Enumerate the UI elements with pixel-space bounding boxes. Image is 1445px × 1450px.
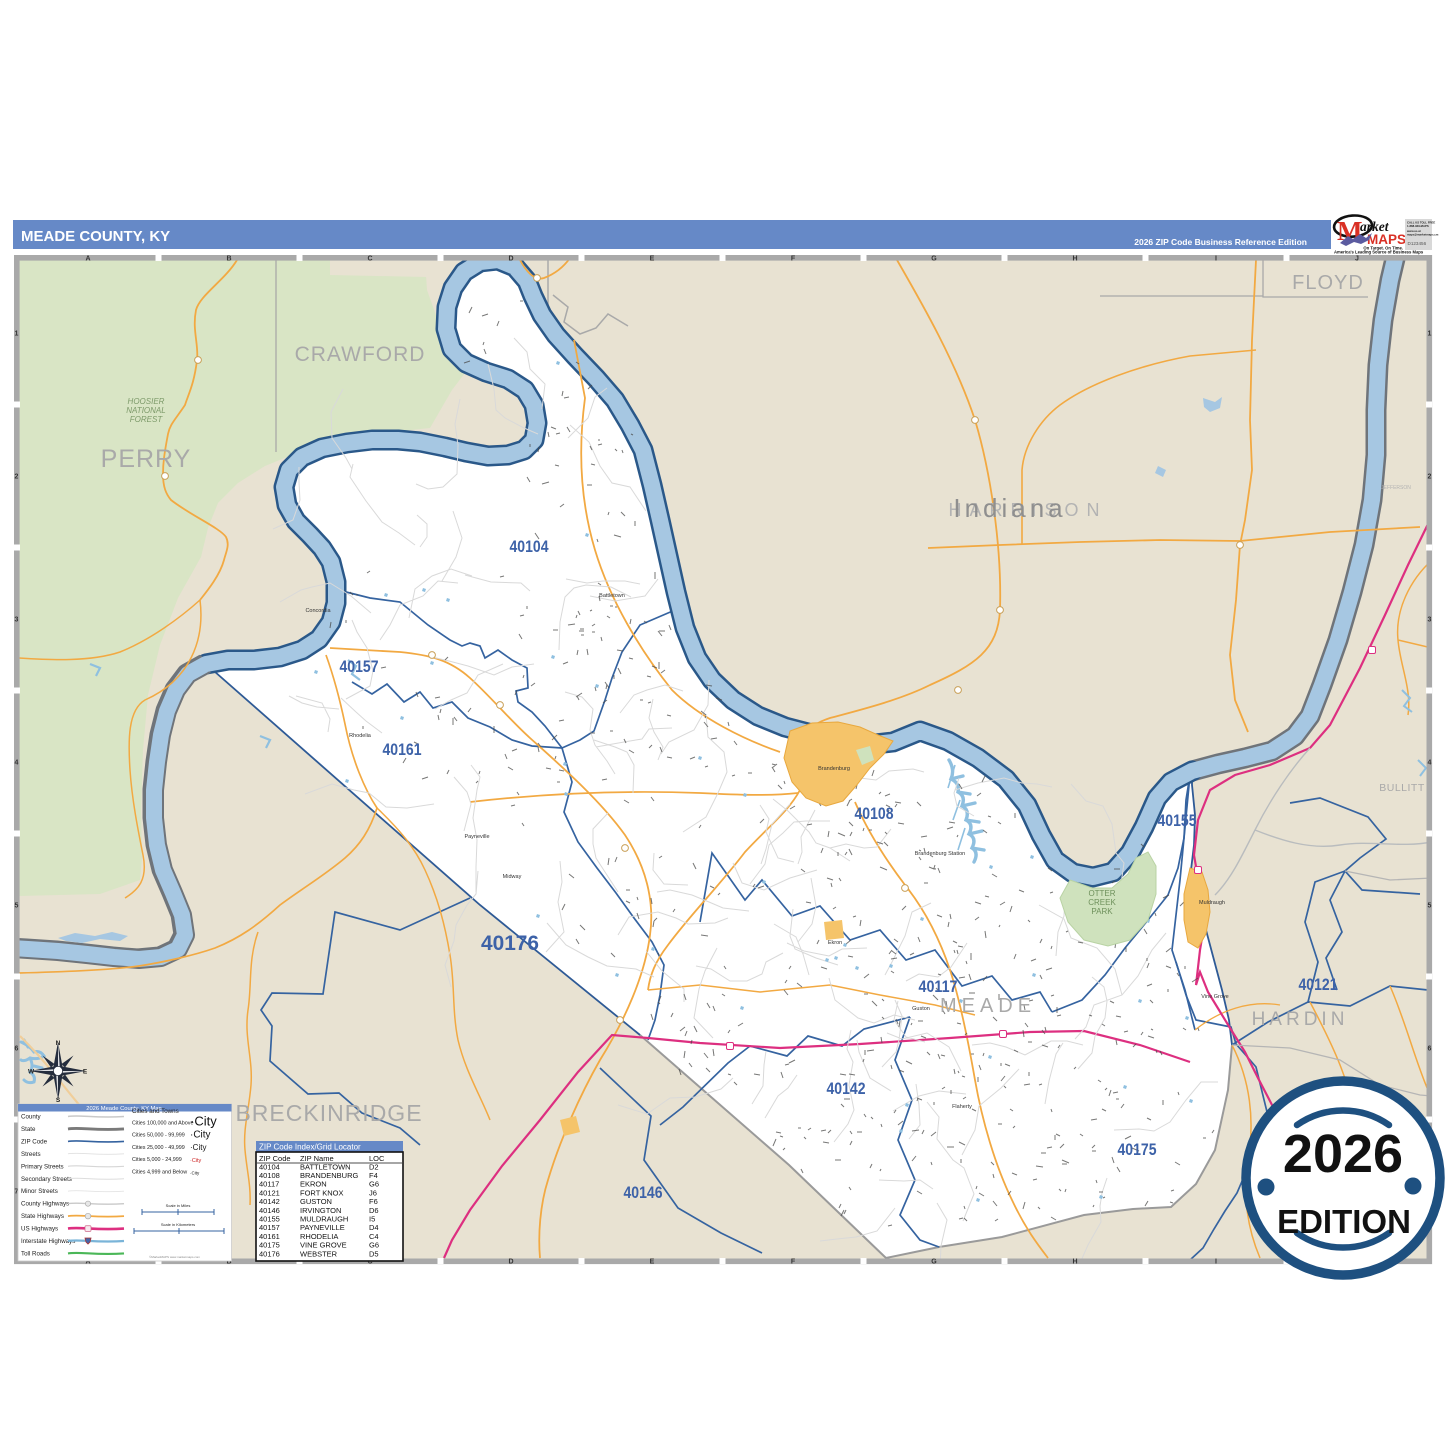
svg-text:Cities 50,000 - 99,999: Cities 50,000 - 99,999	[132, 1133, 185, 1139]
svg-text:4: 4	[1428, 760, 1432, 767]
svg-text:40104: 40104	[510, 538, 550, 556]
svg-text:BULLITT: BULLITT	[1379, 782, 1425, 794]
svg-text:Muldraugh: Muldraugh	[1199, 900, 1225, 906]
svg-text:2: 2	[1428, 474, 1432, 481]
svg-text:Cities and Towns: Cities and Towns	[132, 1108, 179, 1115]
svg-text:Interstate Highways: Interstate Highways	[21, 1238, 75, 1245]
svg-text:FORT KNOX: FORT KNOX	[300, 1188, 343, 1197]
svg-text:BATTLETOWN: BATTLETOWN	[300, 1162, 351, 1171]
svg-text:·City: ·City	[190, 1114, 217, 1129]
svg-text:4: 4	[15, 760, 19, 767]
svg-text:C4: C4	[369, 1232, 379, 1241]
svg-text:D2: D2	[369, 1162, 379, 1171]
svg-text:2026 ZIP Code Business Referen: 2026 ZIP Code Business Reference Edition	[1134, 237, 1307, 247]
svg-text:Rhodelia: Rhodelia	[349, 733, 372, 739]
svg-text:America's Leading Source of B: America's Leading Source of Business Map…	[1334, 250, 1424, 255]
svg-text:1: 1	[1428, 331, 1432, 338]
svg-text:NATIONAL: NATIONAL	[126, 406, 165, 415]
svg-text:D5: D5	[369, 1249, 379, 1258]
svg-text:Streets: Streets	[21, 1151, 41, 1158]
svg-text:Cities 100,000 and Above: Cities 100,000 and Above	[132, 1121, 193, 1127]
svg-text:County Highways: County Highways	[21, 1201, 69, 1208]
svg-text:Scale in Kilometers: Scale in Kilometers	[161, 1222, 195, 1227]
svg-text:Payneville: Payneville	[464, 834, 489, 840]
svg-text:maps@marketmaps.cm: maps@marketmaps.cm	[1407, 233, 1439, 237]
svg-text:F: F	[791, 1259, 796, 1266]
svg-text:3: 3	[15, 617, 19, 624]
svg-text:5: 5	[1428, 903, 1432, 910]
svg-text:GUSTON: GUSTON	[300, 1197, 332, 1206]
svg-text:2: 2	[15, 474, 19, 481]
svg-text:County: County	[21, 1114, 42, 1121]
svg-text:I5: I5	[369, 1215, 375, 1224]
svg-text:40175: 40175	[259, 1241, 280, 1250]
svg-text:ZIP Code Index/Grid Locator: ZIP Code Index/Grid Locator	[259, 1143, 361, 1152]
svg-text:©MarketMAPS www.marketmaps.co: ©MarketMAPS www.marketmaps.com	[149, 1255, 200, 1259]
svg-text:Flaherty: Flaherty	[952, 1104, 972, 1110]
svg-text:C: C	[367, 256, 372, 263]
svg-text:40142: 40142	[827, 1080, 866, 1098]
svg-text:40157: 40157	[340, 658, 379, 676]
svg-text:Ekron: Ekron	[828, 940, 842, 946]
svg-text:40121: 40121	[259, 1188, 280, 1197]
svg-text:F6: F6	[369, 1197, 378, 1206]
svg-text:3: 3	[1428, 617, 1432, 624]
svg-text:D: D	[508, 256, 513, 263]
svg-text:W: W	[28, 1069, 35, 1076]
svg-text:1: 1	[15, 331, 19, 338]
svg-text:CREEK: CREEK	[1088, 898, 1116, 907]
svg-text:US Highways: US Highways	[21, 1226, 58, 1233]
svg-text:40161: 40161	[383, 741, 422, 759]
svg-text:40146: 40146	[259, 1206, 280, 1215]
svg-text:Indiana: Indiana	[953, 493, 1066, 523]
svg-text:BRANDENBURG: BRANDENBURG	[300, 1171, 359, 1180]
svg-text:Concordia: Concordia	[305, 608, 331, 614]
svg-text:40161: 40161	[259, 1232, 280, 1241]
svg-text:40155: 40155	[1158, 812, 1197, 830]
svg-text:·City: ·City	[190, 1158, 202, 1164]
svg-text:J6: J6	[369, 1188, 377, 1197]
svg-text:40176: 40176	[259, 1249, 280, 1258]
svg-text:PARK: PARK	[1091, 907, 1113, 916]
svg-text:H: H	[1072, 256, 1077, 263]
svg-text:F4: F4	[369, 1171, 378, 1180]
svg-text:40155: 40155	[259, 1215, 280, 1224]
svg-text:D6: D6	[369, 1206, 379, 1215]
svg-text:E: E	[650, 1259, 655, 1266]
svg-text:PAYNEVILLE: PAYNEVILLE	[300, 1223, 345, 1232]
svg-text:Secondary Streets: Secondary Streets	[21, 1176, 72, 1183]
svg-text:40121: 40121	[1299, 976, 1338, 994]
svg-text:Brandenburg Station: Brandenburg Station	[915, 851, 965, 857]
svg-text:G: G	[931, 256, 937, 263]
svg-text:MULDRAUGH: MULDRAUGH	[300, 1215, 348, 1224]
svg-text:State: State	[21, 1126, 36, 1133]
svg-text:I: I	[1215, 1259, 1217, 1266]
svg-text:OTTER: OTTER	[1088, 889, 1115, 898]
svg-text:MEADE: MEADE	[940, 995, 1036, 1017]
svg-text:40175: 40175	[1118, 1141, 1157, 1159]
svg-text:WEBSTER: WEBSTER	[300, 1249, 338, 1258]
svg-text:Brandenburg: Brandenburg	[818, 766, 850, 772]
svg-text:IRVINGTON: IRVINGTON	[300, 1206, 341, 1215]
svg-text:·City: ·City	[190, 1171, 200, 1176]
svg-text:S: S	[56, 1097, 61, 1104]
svg-text:G: G	[931, 1259, 937, 1266]
svg-text:Vine Grove: Vine Grove	[1201, 994, 1228, 1000]
svg-text:Primary Streets: Primary Streets	[21, 1163, 64, 1170]
svg-text:40157: 40157	[259, 1223, 280, 1232]
svg-text:40142: 40142	[259, 1197, 280, 1206]
svg-text:40176: 40176	[481, 932, 539, 955]
svg-text:FLOYD: FLOYD	[1292, 272, 1364, 294]
svg-text:5: 5	[15, 903, 19, 910]
svg-text:JEFFERSON: JEFFERSON	[1381, 485, 1411, 491]
svg-text:40108: 40108	[855, 805, 894, 823]
svg-text:D123456: D123456	[1408, 241, 1427, 246]
svg-text:Toll Roads: Toll Roads	[21, 1250, 50, 1257]
svg-text:H: H	[1072, 1259, 1077, 1266]
svg-text:40117: 40117	[919, 978, 958, 996]
svg-text:F: F	[791, 256, 796, 263]
svg-text:Midway: Midway	[503, 874, 522, 880]
svg-text:G6: G6	[369, 1241, 379, 1250]
svg-text:PERRY: PERRY	[101, 445, 192, 473]
svg-text:·City: ·City	[190, 1130, 211, 1141]
svg-text:D: D	[508, 1259, 513, 1266]
svg-text:State Highways: State Highways	[21, 1213, 64, 1220]
svg-text:40104: 40104	[259, 1162, 280, 1171]
svg-text:EDITION: EDITION	[1277, 1203, 1411, 1240]
svg-text:Cities 5,000 - 24,999: Cities 5,000 - 24,999	[132, 1157, 182, 1163]
svg-text:·City: ·City	[190, 1143, 206, 1152]
svg-text:HARDIN: HARDIN	[1252, 1009, 1349, 1030]
svg-text:A: A	[85, 256, 90, 263]
svg-text:Scale in Miles: Scale in Miles	[166, 1203, 191, 1208]
svg-text:Minor Streets: Minor Streets	[21, 1188, 58, 1195]
svg-text:G6: G6	[369, 1180, 379, 1189]
svg-text:I: I	[1215, 256, 1217, 263]
svg-text:40108: 40108	[259, 1171, 280, 1180]
svg-text:N: N	[56, 1040, 61, 1047]
svg-text:Guston: Guston	[912, 1006, 930, 1012]
svg-text:6: 6	[15, 1046, 19, 1053]
svg-text:40117: 40117	[259, 1180, 279, 1189]
svg-text:E: E	[650, 256, 655, 263]
svg-text:Battletown: Battletown	[599, 593, 625, 599]
svg-text:CRAWFORD: CRAWFORD	[295, 343, 426, 366]
svg-text:BRECKINRIDGE: BRECKINRIDGE	[235, 1100, 422, 1126]
svg-text:EKRON: EKRON	[300, 1180, 327, 1189]
svg-text:40146: 40146	[624, 1184, 663, 1202]
svg-text:MEADE COUNTY, KY: MEADE COUNTY, KY	[21, 228, 170, 245]
svg-text:E: E	[83, 1069, 88, 1076]
svg-text:D4: D4	[369, 1223, 379, 1232]
svg-text:ZIP Code: ZIP Code	[21, 1138, 48, 1145]
svg-text:HOOSIER: HOOSIER	[128, 397, 165, 406]
svg-text:1-888-929-MAPS: 1-888-929-MAPS	[1407, 224, 1429, 228]
svg-text:6: 6	[1428, 1046, 1432, 1053]
svg-text:FOREST: FOREST	[130, 415, 164, 424]
svg-text:2026: 2026	[1283, 1124, 1403, 1184]
svg-text:Cities 25,000 - 49,999: Cities 25,000 - 49,999	[132, 1145, 185, 1151]
svg-text:VINE GROVE: VINE GROVE	[300, 1241, 347, 1250]
svg-text:B: B	[226, 256, 231, 263]
svg-text:J: J	[1355, 256, 1359, 263]
svg-text:Cities 4,999 and Below: Cities 4,999 and Below	[132, 1170, 187, 1176]
svg-text:RHODELIA: RHODELIA	[300, 1232, 338, 1241]
